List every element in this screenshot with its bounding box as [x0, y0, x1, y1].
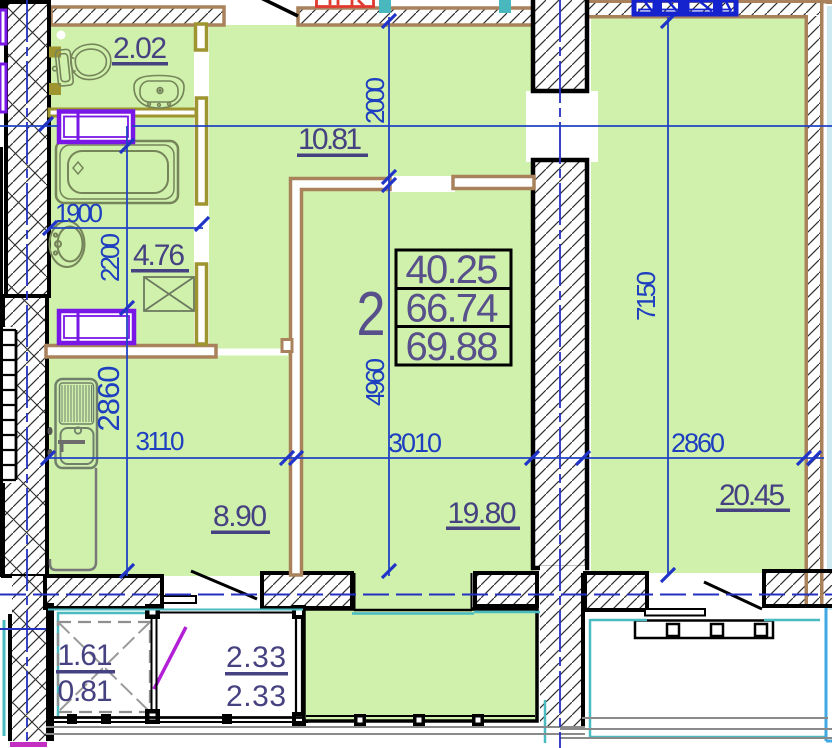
svg-text:3110: 3110: [136, 426, 185, 456]
svg-text:7150: 7150: [631, 271, 661, 321]
svg-text:2.33: 2.33: [226, 680, 286, 713]
svg-text:2200: 2200: [95, 233, 125, 282]
svg-text:10.81: 10.81: [298, 123, 362, 156]
svg-text:1.61: 1.61: [58, 639, 113, 672]
svg-text:0.81: 0.81: [58, 675, 113, 708]
svg-text:8.90: 8.90: [213, 500, 267, 533]
svg-text:4.76: 4.76: [133, 239, 185, 272]
svg-text:2: 2: [357, 280, 386, 349]
svg-text:20.45: 20.45: [719, 479, 785, 512]
svg-text:2000: 2000: [360, 77, 390, 124]
svg-text:69.88: 69.88: [406, 325, 499, 369]
svg-text:1900: 1900: [55, 198, 103, 228]
svg-text:3010: 3010: [388, 428, 442, 458]
svg-text:40.25: 40.25: [406, 248, 499, 292]
svg-text:2860: 2860: [671, 428, 725, 458]
svg-text:2.33: 2.33: [226, 641, 286, 674]
svg-text:19.80: 19.80: [448, 497, 517, 530]
svg-text:2.02: 2.02: [113, 32, 167, 65]
svg-text:2860: 2860: [91, 366, 126, 432]
svg-text:4960: 4960: [360, 358, 390, 406]
svg-text:66.74: 66.74: [406, 287, 499, 331]
